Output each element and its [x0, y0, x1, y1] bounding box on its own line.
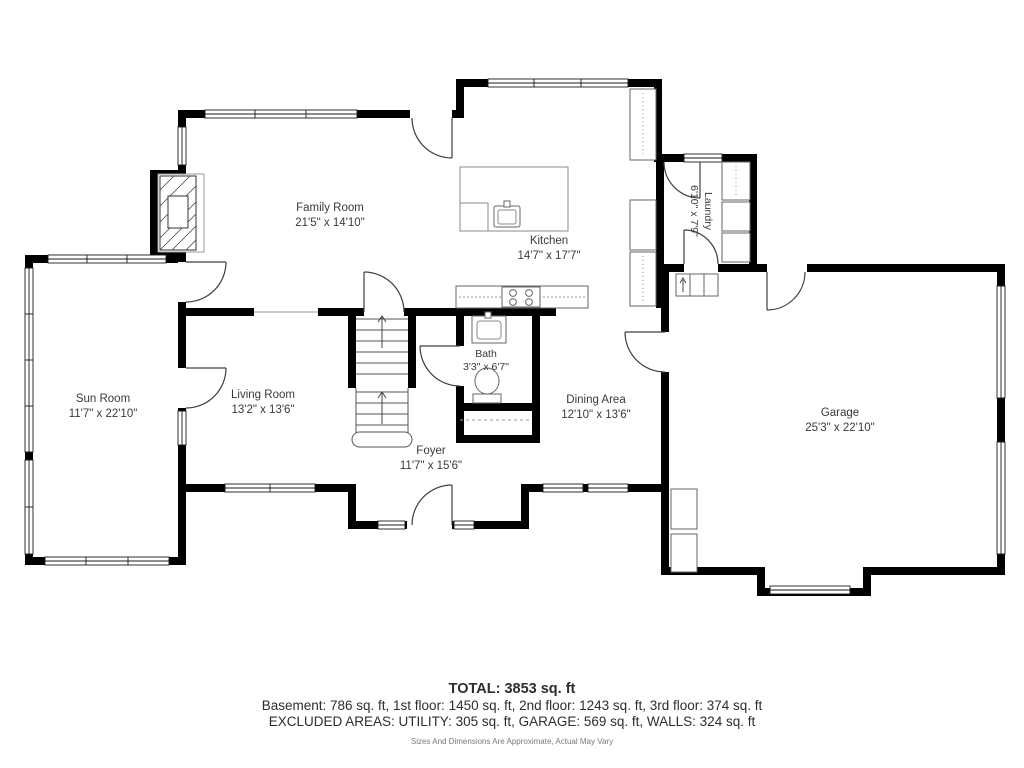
- bathroom-sink: [472, 312, 506, 343]
- foyer-name: Foyer: [416, 445, 446, 457]
- floor-plan: Family Room 21'5" x 14'10" Kitchen 14'7"…: [0, 0, 1024, 670]
- washer-icon: [722, 202, 750, 231]
- sun-room-name: Sun Room: [76, 393, 130, 405]
- room-label-family: Family Room 21'5" x 14'10": [295, 202, 364, 229]
- excluded-areas: EXCLUDED AREAS: UTILITY: 305 sq. ft, GAR…: [0, 714, 1024, 730]
- stair-up-arrow: [378, 392, 386, 424]
- family-room-dims: 21'5" x 14'10": [295, 217, 364, 229]
- kitchen-island: [460, 167, 568, 231]
- door-arc-family-hall: [364, 272, 404, 312]
- burner-icon: [510, 290, 517, 297]
- stair-up-arrow: [378, 316, 386, 348]
- bath-dims: 3'3" x 6'7": [463, 361, 509, 373]
- disclaimer-text: Sizes And Dimensions Are Approximate, Ac…: [0, 737, 1024, 746]
- faucet-icon: [485, 312, 491, 318]
- door-arc-sunroom-family: [186, 262, 226, 302]
- total-area: TOTAL: 3853 sq. ft: [0, 681, 1024, 698]
- room-label-laundry: Laundry 6'10" x 7'9": [688, 185, 714, 237]
- room-label-living: Living Room 13'2" x 13'6": [231, 389, 295, 416]
- laundry-name: Laundry: [702, 192, 714, 231]
- main-staircase: [352, 316, 412, 447]
- room-label-foyer: Foyer 11'7" x 15'6": [400, 445, 462, 472]
- kitchen-stove-counter: [456, 286, 588, 308]
- area-summary: TOTAL: 3853 sq. ft Basement: 786 sq. ft,…: [0, 681, 1024, 746]
- dryer-icon: [722, 233, 750, 262]
- burner-icon: [526, 299, 533, 306]
- living-room-dims: 13'2" x 13'6": [231, 404, 294, 416]
- foyer-dims: 11'7" x 15'6": [400, 460, 462, 472]
- door-arc-bath: [420, 346, 460, 386]
- garage-utility-units: [671, 489, 697, 572]
- floor-plan-svg: Family Room 21'5" x 14'10" Kitchen 14'7"…: [0, 0, 1024, 670]
- door-arc-garage-entry: [767, 272, 805, 310]
- room-label-bath: Bath 3'3" x 6'7": [463, 348, 509, 373]
- laundry-dims: 6'10" x 7'9": [688, 185, 700, 237]
- door-arc-foyer-entry: [412, 485, 452, 525]
- bath-name: Bath: [475, 348, 497, 360]
- kitchen-dims: 14'7" x 17'7": [517, 250, 580, 262]
- floor-plan-page: Family Room 21'5" x 14'10" Kitchen 14'7"…: [0, 0, 1024, 768]
- door-arc-sunroom-living: [186, 368, 226, 408]
- burner-icon: [510, 299, 517, 306]
- room-label-kitchen: Kitchen 14'7" x 17'7": [517, 235, 580, 262]
- door-arc-family-exterior: [412, 118, 452, 158]
- sun-room-dims: 11'7" x 22'10": [69, 408, 138, 420]
- room-label-dining: Dining Area 12'10" x 13'6": [561, 394, 630, 421]
- garage-dims: 25'3" x 22'10": [805, 422, 874, 434]
- walls: [25, 79, 1005, 596]
- floor-areas: Basement: 786 sq. ft, 1st floor: 1450 sq…: [0, 698, 1024, 714]
- faucet-icon: [504, 201, 510, 207]
- living-room-name: Living Room: [231, 389, 295, 401]
- room-label-sunroom: Sun Room 11'7" x 22'10": [69, 393, 138, 420]
- burner-icon: [526, 290, 533, 297]
- kitchen-name: Kitchen: [530, 235, 568, 247]
- windows: [25, 79, 1005, 594]
- kitchen-pantry-cabinets: [630, 89, 656, 306]
- garage-steps: [676, 274, 718, 296]
- dining-area-name: Dining Area: [566, 394, 626, 406]
- dining-area-dims: 12'10" x 13'6": [561, 409, 630, 421]
- fireplace: [158, 174, 204, 252]
- room-label-garage: Garage 25'3" x 22'10": [805, 407, 874, 434]
- family-room-name: Family Room: [296, 202, 364, 214]
- toilet: [473, 368, 501, 403]
- laundry-appliances: [722, 162, 750, 262]
- door-arc-dining-garage: [625, 332, 665, 372]
- garage-name: Garage: [821, 407, 859, 419]
